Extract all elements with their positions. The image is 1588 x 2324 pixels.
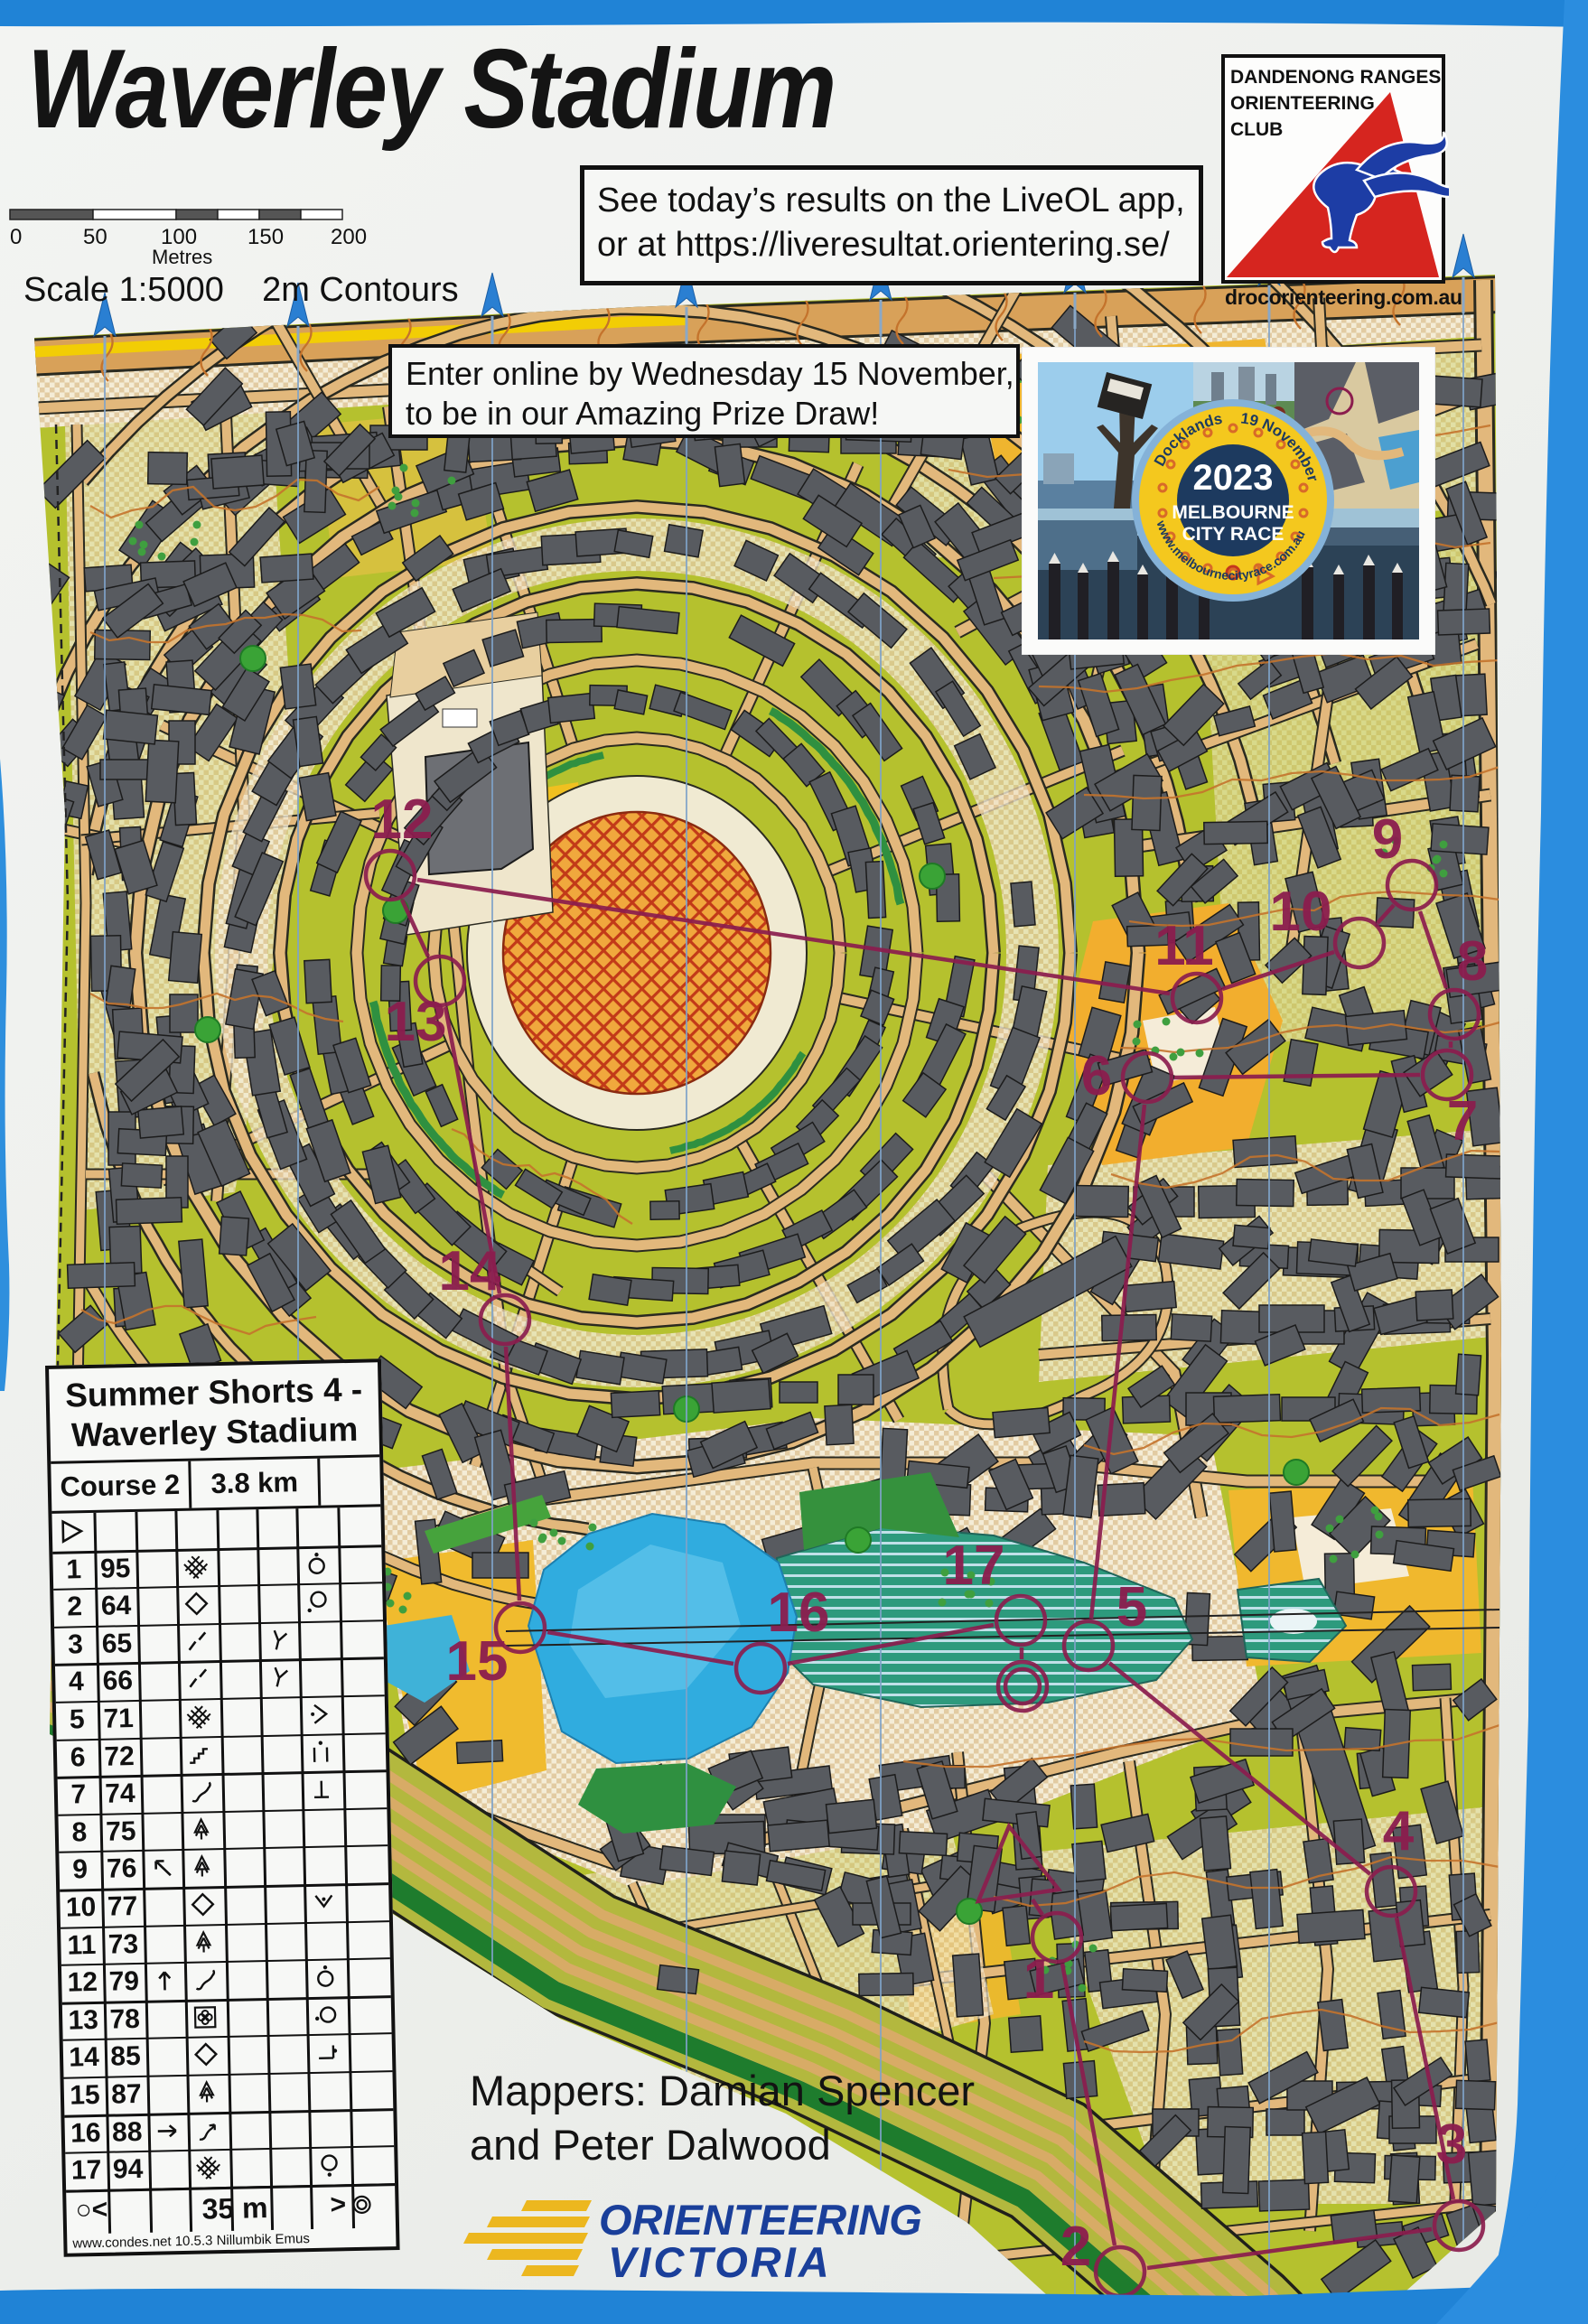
svg-text:MELBOURNE: MELBOURNE [1172, 502, 1294, 523]
svg-text:CLUB: CLUB [1230, 119, 1283, 140]
svg-text:DANDENONG RANGES: DANDENONG RANGES [1230, 67, 1441, 88]
svg-text:0: 0 [10, 225, 22, 249]
svg-text:5: 5 [1116, 1576, 1147, 1638]
svg-text:9: 9 [1372, 808, 1403, 871]
svg-text:17: 17 [943, 1535, 1005, 1597]
svg-text:ORIENTEERING: ORIENTEERING [599, 2196, 922, 2244]
svg-text:16: 16 [768, 1582, 830, 1644]
svg-text:1: 1 [1023, 1948, 1054, 2011]
svg-text:VICTORIA: VICTORIA [608, 2238, 832, 2284]
svg-text:Metres: Metres [152, 246, 212, 268]
svg-text:200: 200 [331, 225, 367, 249]
svg-text:50: 50 [83, 225, 107, 249]
svg-text:12: 12 [371, 789, 434, 851]
svg-text:14: 14 [439, 1240, 501, 1302]
svg-text:ORIENTEERING: ORIENTEERING [1230, 93, 1375, 114]
svg-text:6: 6 [1081, 1045, 1112, 1107]
svg-text:13: 13 [385, 991, 447, 1053]
svg-text:4: 4 [1383, 1800, 1415, 1862]
svg-text:10: 10 [1270, 881, 1332, 943]
svg-text:11: 11 [1154, 915, 1214, 977]
svg-text:15: 15 [446, 1630, 509, 1693]
svg-text:2023: 2023 [1193, 458, 1274, 498]
svg-text:CITY RACE: CITY RACE [1182, 524, 1284, 545]
svg-text:150: 150 [248, 225, 284, 249]
svg-text:2: 2 [1060, 2216, 1091, 2278]
